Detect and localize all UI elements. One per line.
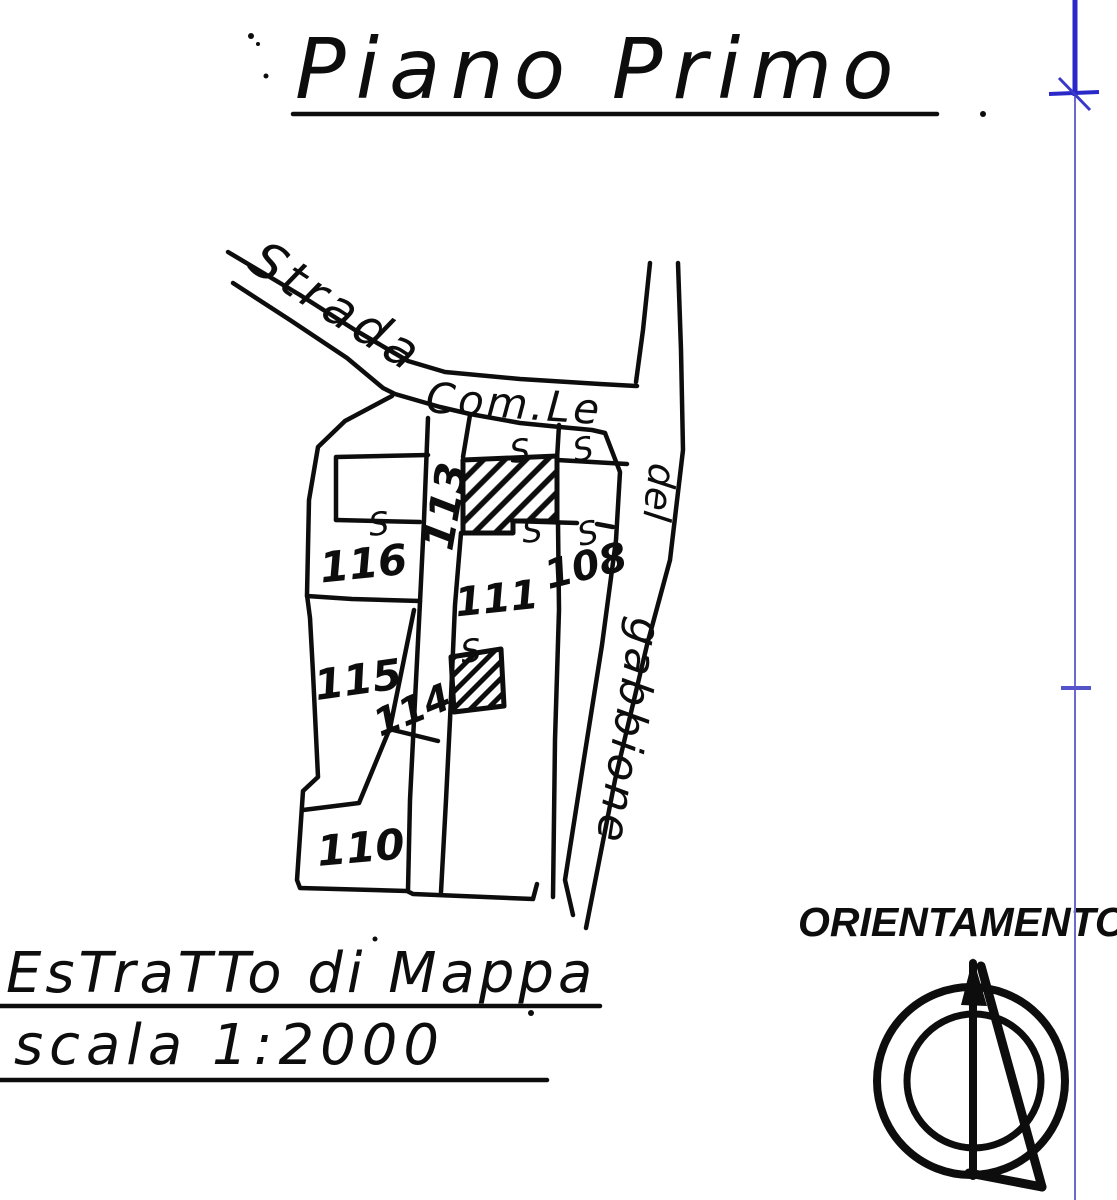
building-1-hatched (463, 456, 557, 533)
orientation-block: ORIENTAMENTO (798, 899, 1117, 1187)
stair-mark: S (459, 631, 483, 671)
scanned-map-page: Piano Primo (0, 0, 1117, 1200)
title-block: Piano Primo (293, 20, 937, 118)
footer-scale-label: scala 1:2000 (14, 1013, 445, 1078)
parcel-number-111: 111 (453, 572, 541, 626)
stair-mark: S (521, 511, 544, 550)
orientation-label: ORIENTAMENTO (798, 899, 1117, 945)
parcel-number-110: 110 (315, 819, 407, 875)
parcel-number-116: 116 (317, 535, 409, 593)
page-title: Piano Primo (295, 20, 904, 118)
stair-mark: S (367, 504, 391, 544)
registration-line (1049, 0, 1099, 1200)
stair-mark: S (570, 429, 597, 470)
parcel-number-113: 113 (414, 459, 477, 554)
road-label-del: del (634, 461, 685, 524)
compass-icon (877, 958, 1065, 1187)
footer-extract-label: EsTraTTo di Mappa (6, 941, 596, 1006)
road-label-gabbione: gabbione (585, 614, 671, 848)
map-drawing: Piano Primo (0, 0, 1117, 1200)
stair-mark: S (508, 431, 532, 471)
footer-block: EsTraTTo di Mappa scala 1:2000 (0, 941, 600, 1080)
